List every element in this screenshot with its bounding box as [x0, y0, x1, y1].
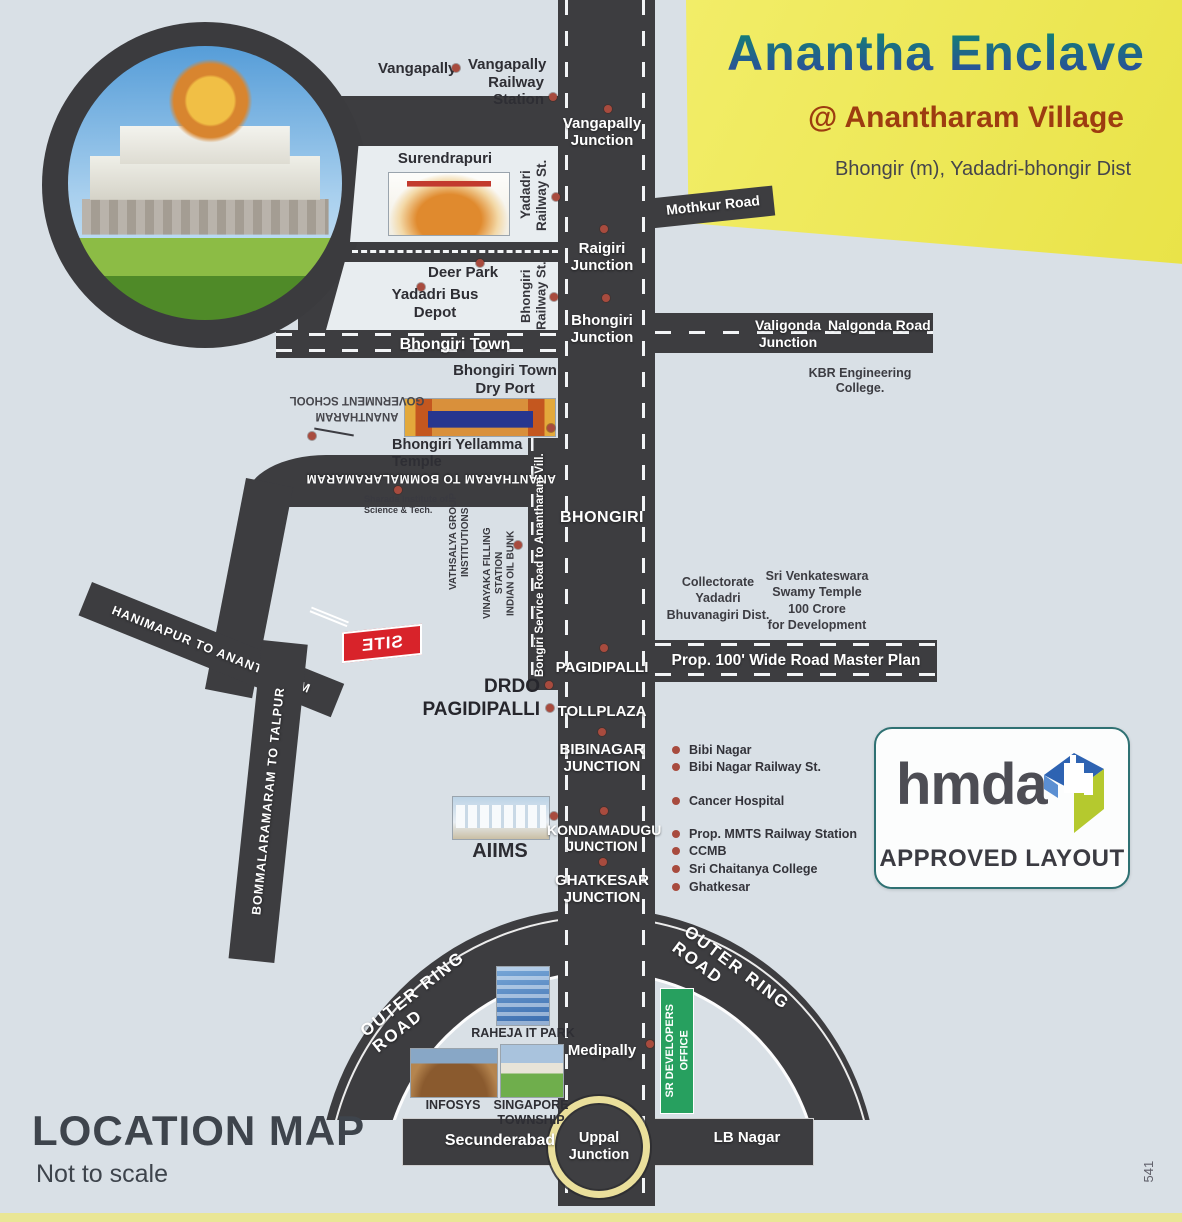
- map-dot-icon: [600, 225, 608, 233]
- landmark-label: Prop. MMTS Railway Station: [689, 827, 857, 841]
- map-dot-icon: [598, 728, 606, 736]
- map-dot-icon: [600, 644, 608, 652]
- map-dot-icon: [452, 64, 460, 72]
- landmark-cancer-hospital: Cancer Hospital: [672, 794, 784, 808]
- map-dot-icon: [550, 293, 558, 301]
- ghatkesar-junction-label: GHATKESAR JUNCTION: [547, 872, 657, 907]
- landmark-mmts-station: Prop. MMTS Railway Station: [672, 827, 857, 841]
- landmark-ghatkesar: Ghatkesar: [672, 880, 750, 894]
- map-dot-icon: [552, 193, 560, 201]
- tollplaza-label: TOLLPLAZA: [547, 703, 657, 720]
- bommalaramaram-talpur-label: BOMMALARAMARAM TO TALPUR: [249, 687, 287, 916]
- landmark-label: Sri Chaitanya College: [689, 862, 818, 876]
- infosys-label: INFOSYS: [410, 1098, 496, 1113]
- kondamadugu-junction-label: KONDAMADUGU JUNCTION: [547, 822, 657, 854]
- road-dash-line: [352, 250, 558, 253]
- map-dot-icon: [672, 883, 680, 891]
- secunderabad-label: Secunderabad: [420, 1132, 580, 1151]
- drdo-label: DRDO: [420, 676, 540, 698]
- hmda-badge: hmda APPROVED LAYOUT: [874, 727, 1130, 889]
- pagidipalli-town-label: PAGIDIPALLI: [398, 699, 540, 721]
- anantharam-bommalaramaram-label: ANANTHARAM TO BOMMALARAMARAM: [306, 472, 556, 486]
- map-dot-icon: [672, 847, 680, 855]
- lb-nagar-label: LB Nagar: [692, 1129, 802, 1147]
- raigiri-junction-label: Raigiri Junction: [547, 240, 657, 275]
- govt-school-label: ANANTHARAM GOVERNMENT SCHOOL: [272, 392, 442, 423]
- vinayaka-label: VINAYAKA FILLING STATION INDIAN OIL BUNK: [482, 506, 517, 640]
- singapore-township-label: SINGAPORE TOWNSHIP: [486, 1098, 576, 1128]
- venkateswara-label: Sri Venkateswara Swamy Temple 100 Crore …: [762, 568, 872, 633]
- map-dot-icon: [476, 259, 484, 267]
- hmda-caption: APPROVED LAYOUT: [876, 845, 1128, 873]
- location-map-title: LOCATION MAP: [32, 1106, 365, 1156]
- site-flag-label: SITE: [361, 631, 403, 655]
- yadadri-railway-st-label: Yadadri Railway St.: [518, 150, 550, 240]
- map-dot-icon: [547, 424, 555, 432]
- bhongiri-stop-label: BHONGIRI: [547, 509, 657, 527]
- hmda-brand: hmda: [896, 751, 1047, 818]
- hmda-logo-icon: [1034, 743, 1110, 843]
- aiims-photo: [452, 796, 550, 840]
- location-map-canvas: Anantha Enclave @ Anantharam Village Bho…: [0, 0, 1182, 1222]
- landmark-label: Cancer Hospital: [689, 794, 784, 808]
- map-dot-icon: [672, 746, 680, 754]
- bhongiri-town-road-label: Bhongiri Town: [380, 336, 530, 355]
- page-title: Anantha Enclave: [700, 24, 1172, 83]
- map-dot-icon: [394, 486, 402, 494]
- surendrapuri-label: Surendrapuri: [380, 150, 510, 168]
- map-dot-icon: [602, 294, 610, 302]
- bhongiri-junction-label: Bhongiri Junction: [547, 312, 657, 347]
- landmark-bibi-nagar: Bibi Nagar: [672, 743, 752, 757]
- vangapally-label: Vangapally: [378, 60, 456, 78]
- map-dot-icon: [550, 812, 558, 820]
- landmark-sri-chaitanya: Sri Chaitanya College: [672, 862, 818, 876]
- landmark-label: Bibi Nagar Railway St.: [689, 760, 821, 774]
- ref-number: 541: [1141, 1161, 1156, 1183]
- scale-note: Not to scale: [36, 1160, 168, 1190]
- landmark-label: Bibi Nagar: [689, 743, 752, 757]
- map-dot-icon: [646, 1040, 654, 1048]
- district-line: Bhongir (m), Yadadri-bhongir Dist: [790, 158, 1176, 182]
- site-pole-line: [311, 607, 349, 624]
- bhongiri-railway-st-label: Bhongiri Railway St.: [518, 260, 549, 332]
- landmark-bibi-nagar-railway: Bibi Nagar Railway St.: [672, 760, 821, 774]
- map-dot-icon: [417, 283, 425, 291]
- map-dot-icon: [672, 830, 680, 838]
- landmark-label: CCMB: [689, 844, 727, 858]
- collectorate-label: Collectorate Yadadri Bhuvanagiri Dist.: [662, 574, 774, 623]
- yadadri-temple-photo: [68, 46, 342, 320]
- nalgonda-road-label: Nalgonda Road: [828, 317, 933, 334]
- map-dot-icon: [604, 105, 612, 113]
- map-dot-icon: [672, 865, 680, 873]
- map-dot-icon: [672, 797, 680, 805]
- map-dot-icon: [672, 763, 680, 771]
- aiims-label: AIIMS: [452, 840, 548, 864]
- page-subtitle: @ Anantharam Village: [760, 100, 1172, 135]
- vangapally-railway-station-label: Vangapally Railway Station: [468, 56, 544, 109]
- kbr-college-label: KBR Engineering College.: [800, 366, 920, 396]
- site-flag: SITE: [342, 624, 422, 663]
- sr-developers-office-banner: SR DEVELOPERS OFFICE: [660, 988, 694, 1114]
- landmark-ccmb: CCMB: [672, 844, 727, 858]
- dry-port-label: Bhongiri Town Dry Port: [430, 362, 580, 397]
- map-dot-icon: [549, 93, 557, 101]
- yadadri-bus-depot-label: Yadadri Bus Depot: [380, 286, 490, 321]
- map-dot-icon: [308, 432, 316, 440]
- deer-park-label: Deer Park: [428, 264, 498, 282]
- bongiri-service-road-label: Bongiri Service Road to Anantharam Vill.: [534, 442, 548, 688]
- prop-100-road-label: Prop. 100' Wide Road Master Plan: [660, 652, 932, 670]
- map-dot-icon: [600, 807, 608, 815]
- map-dot-icon: [599, 858, 607, 866]
- bibinagar-junction-label: BIBINAGAR JUNCTION: [547, 741, 657, 776]
- sr-developers-office-label: SR DEVELOPERS OFFICE: [663, 1004, 692, 1098]
- raheja-it-park-photo: [496, 966, 550, 1026]
- sharada-label: Sharada Institute of Science & Tech.: [364, 494, 459, 515]
- bottom-strip: [0, 1213, 1182, 1222]
- pagidipalli-junction-label: PAGIDIPALLI: [547, 659, 657, 676]
- map-dot-icon: [545, 681, 553, 689]
- infosys-photo: [410, 1048, 498, 1098]
- vangapally-junction-label: Vangapally Junction: [547, 115, 657, 150]
- map-dot-icon: [514, 541, 522, 549]
- school-pointer-line: [314, 428, 354, 437]
- medipally-label: Medipally: [547, 1042, 657, 1059]
- landmark-label: Ghatkesar: [689, 880, 750, 894]
- surendrapuri-photo: [388, 172, 510, 236]
- map-dot-icon: [546, 704, 554, 712]
- valigonda-junction-label: Valigonda Junction: [742, 317, 834, 350]
- raheja-it-park-label: RAHEJA IT PARK: [448, 1026, 598, 1041]
